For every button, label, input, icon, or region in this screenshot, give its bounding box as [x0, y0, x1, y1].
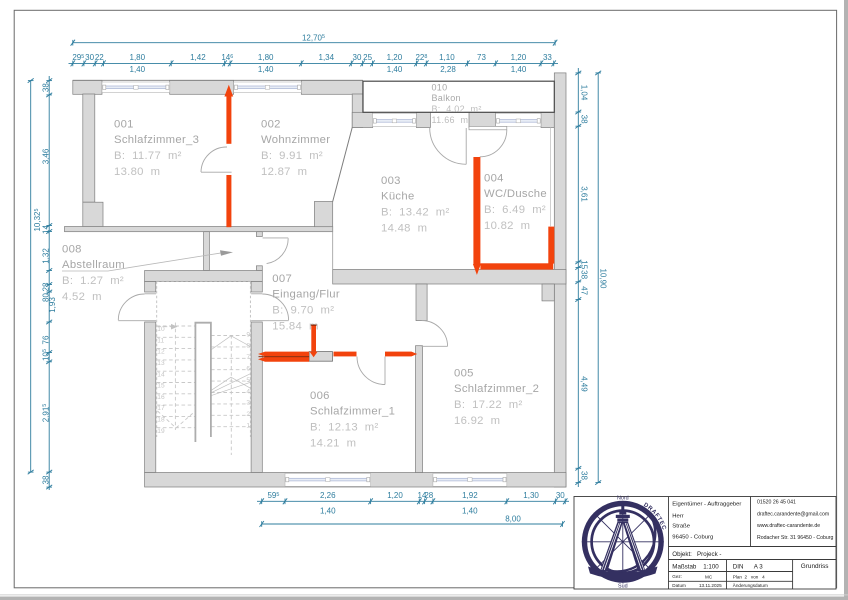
svg-text:B: 11.77 m²: B: 11.77 m²: [114, 150, 182, 162]
svg-text:12: 12: [157, 349, 165, 356]
svg-text:01520 26 45 041: 01520 26 45 041: [757, 500, 796, 506]
svg-text:25: 25: [363, 53, 372, 62]
svg-text:14: 14: [41, 225, 50, 234]
svg-text:Herr: Herr: [672, 513, 683, 519]
svg-text:B: 12.13 m²: B: 12.13 m²: [310, 422, 379, 434]
svg-text:1: 1: [246, 423, 250, 430]
svg-text:001: 001: [114, 119, 134, 131]
svg-text:Schlafzimmer_2: Schlafzimmer_2: [454, 383, 539, 395]
svg-text:WC/Dusche: WC/Dusche: [484, 188, 547, 200]
svg-text:3: 3: [246, 400, 250, 407]
svg-text:17: 17: [157, 405, 165, 412]
svg-text:Änderungsdatum: Änderungsdatum: [733, 582, 768, 588]
svg-text:11: 11: [157, 337, 164, 344]
svg-text:Grundriss: Grundriss: [801, 563, 829, 570]
svg-text:12.87 m: 12.87 m: [261, 166, 307, 178]
svg-text:15: 15: [157, 383, 165, 390]
svg-text:38: 38: [579, 471, 588, 480]
svg-text:MC: MC: [705, 574, 713, 579]
svg-text:B: 4.02 m²: B: 4.02 m²: [432, 104, 482, 114]
svg-text:B: 6.49 m²: B: 6.49 m²: [484, 204, 546, 216]
svg-text:9: 9: [246, 331, 250, 338]
svg-text:010: 010: [432, 83, 448, 93]
svg-text:8,00: 8,00: [505, 514, 521, 523]
svg-text:12,705: 12,705: [302, 33, 325, 42]
svg-text:16.92 m: 16.92 m: [454, 415, 500, 427]
svg-text:Plan 2 von 4: Plan 2 von 4: [733, 574, 765, 579]
svg-text:13.80 m: 13.80 m: [114, 166, 160, 178]
svg-text:96450 - Coburg: 96450 - Coburg: [672, 534, 713, 540]
svg-text:6: 6: [246, 366, 250, 373]
svg-text:38: 38: [41, 83, 50, 92]
svg-text:73: 73: [477, 53, 486, 62]
svg-text:004: 004: [484, 173, 504, 185]
svg-text:76: 76: [41, 335, 50, 344]
svg-text:B: 9.91 m²: B: 9.91 m²: [261, 150, 323, 162]
svg-text:Eingang/Flur: Eingang/Flur: [272, 289, 340, 301]
svg-text:14: 14: [157, 371, 165, 378]
svg-text:28: 28: [424, 491, 433, 500]
svg-text:30: 30: [556, 491, 565, 500]
svg-text:1,40: 1,40: [258, 65, 274, 74]
svg-text:1,92: 1,92: [462, 491, 478, 500]
svg-text:13: 13: [157, 360, 165, 367]
svg-text:1,34: 1,34: [319, 53, 335, 62]
svg-text:Süd: Süd: [618, 584, 628, 590]
svg-text:2: 2: [246, 411, 250, 418]
svg-text:Straße: Straße: [672, 523, 690, 529]
svg-text:Maßstab 1:100: Maßstab 1:100: [672, 564, 719, 571]
svg-text:18: 18: [157, 417, 165, 424]
svg-text:14.48 m: 14.48 m: [381, 223, 427, 235]
svg-text:1,20: 1,20: [511, 53, 527, 62]
svg-text:10,90: 10,90: [599, 268, 608, 289]
svg-text:Wohnzimmer: Wohnzimmer: [261, 134, 330, 146]
svg-text:47: 47: [579, 286, 588, 295]
svg-text:13.11.2025: 13.11.2025: [699, 583, 722, 588]
svg-text:B: 17.22 m²: B: 17.22 m²: [454, 399, 523, 411]
svg-text:Nord: Nord: [617, 496, 629, 502]
svg-text:002: 002: [261, 119, 281, 131]
svg-text:1,20: 1,20: [387, 53, 403, 62]
svg-text:1,42: 1,42: [190, 53, 206, 62]
svg-text:1,40: 1,40: [387, 65, 403, 74]
svg-text:14.21 m: 14.21 m: [310, 438, 356, 450]
svg-text:15: 15: [579, 260, 588, 269]
svg-text:11.66 m: 11.66 m: [432, 115, 469, 125]
svg-text:Abstellraum: Abstellraum: [62, 259, 125, 271]
svg-text:2,28: 2,28: [440, 65, 456, 74]
svg-text:22: 22: [95, 53, 104, 62]
svg-text:5: 5: [246, 377, 250, 384]
svg-text:003: 003: [381, 175, 401, 187]
svg-text:3,61: 3,61: [579, 186, 588, 202]
svg-text:10: 10: [157, 326, 165, 333]
svg-text:1,40: 1,40: [320, 507, 336, 516]
svg-text:10.82 m: 10.82 m: [484, 220, 530, 232]
svg-text:Eigentümer - Auftraggeber: Eigentümer - Auftraggeber: [672, 502, 741, 508]
svg-text:Schlafzimmer_1: Schlafzimmer_1: [310, 406, 395, 418]
svg-text:1,30: 1,30: [523, 491, 539, 500]
svg-text:Datum: Datum: [672, 583, 686, 588]
svg-text:B: 13.42 m²: B: 13.42 m²: [381, 207, 450, 219]
svg-text:Balkon: Balkon: [432, 93, 461, 103]
svg-text:1,80: 1,80: [130, 53, 146, 62]
svg-text:4.52 m: 4.52 m: [62, 291, 102, 303]
svg-text:38: 38: [579, 270, 588, 279]
svg-text:DIN A 3: DIN A 3: [733, 564, 763, 571]
svg-text:30: 30: [353, 53, 362, 62]
svg-text:1,40: 1,40: [462, 507, 478, 516]
svg-text:006: 006: [310, 390, 330, 402]
svg-text:B: 9.70 m²: B: 9.70 m²: [272, 305, 334, 317]
svg-text:1,93: 1,93: [48, 297, 57, 313]
svg-text:Schlafzimmer_3: Schlafzimmer_3: [114, 134, 199, 146]
svg-text:1,80: 1,80: [258, 53, 274, 62]
svg-text:2,26: 2,26: [320, 491, 336, 500]
svg-text:3,46: 3,46: [41, 148, 50, 164]
svg-text:draftec.carandente@gmail.com: draftec.carandente@gmail.com: [757, 511, 829, 517]
svg-text:Rodacher Str. 31 96450 - Cobur: Rodacher Str. 31 96450 - Coburg: [757, 535, 834, 541]
svg-text:Küche: Küche: [381, 191, 415, 203]
svg-text:1,40: 1,40: [130, 65, 146, 74]
svg-text:007: 007: [272, 273, 292, 285]
svg-text:1,20: 1,20: [387, 491, 403, 500]
svg-text:B: 1.27 m²: B: 1.27 m²: [62, 275, 124, 287]
svg-text:www.draftec-carandente.de: www.draftec-carandente.de: [757, 523, 820, 529]
svg-text:19: 19: [157, 428, 165, 435]
svg-text:4,49: 4,49: [579, 376, 588, 392]
svg-text:Objekt: Projeck -: Objekt: Projeck -: [672, 551, 721, 558]
svg-text:30: 30: [85, 53, 94, 62]
svg-text:1,40: 1,40: [511, 65, 527, 74]
svg-text:4: 4: [246, 388, 250, 395]
svg-text:7: 7: [246, 354, 250, 361]
svg-text:Gez:: Gez:: [672, 574, 682, 579]
svg-text:1,04: 1,04: [579, 85, 588, 101]
svg-text:1,10: 1,10: [439, 53, 455, 62]
svg-text:005: 005: [454, 368, 474, 380]
svg-text:8: 8: [246, 343, 250, 350]
svg-text:008: 008: [62, 244, 82, 256]
svg-text:28: 28: [41, 282, 50, 291]
svg-text:38: 38: [41, 475, 50, 484]
svg-text:1,32: 1,32: [41, 248, 50, 264]
svg-text:16: 16: [157, 394, 165, 401]
svg-text:38: 38: [579, 115, 588, 124]
svg-text:33: 33: [543, 53, 552, 62]
